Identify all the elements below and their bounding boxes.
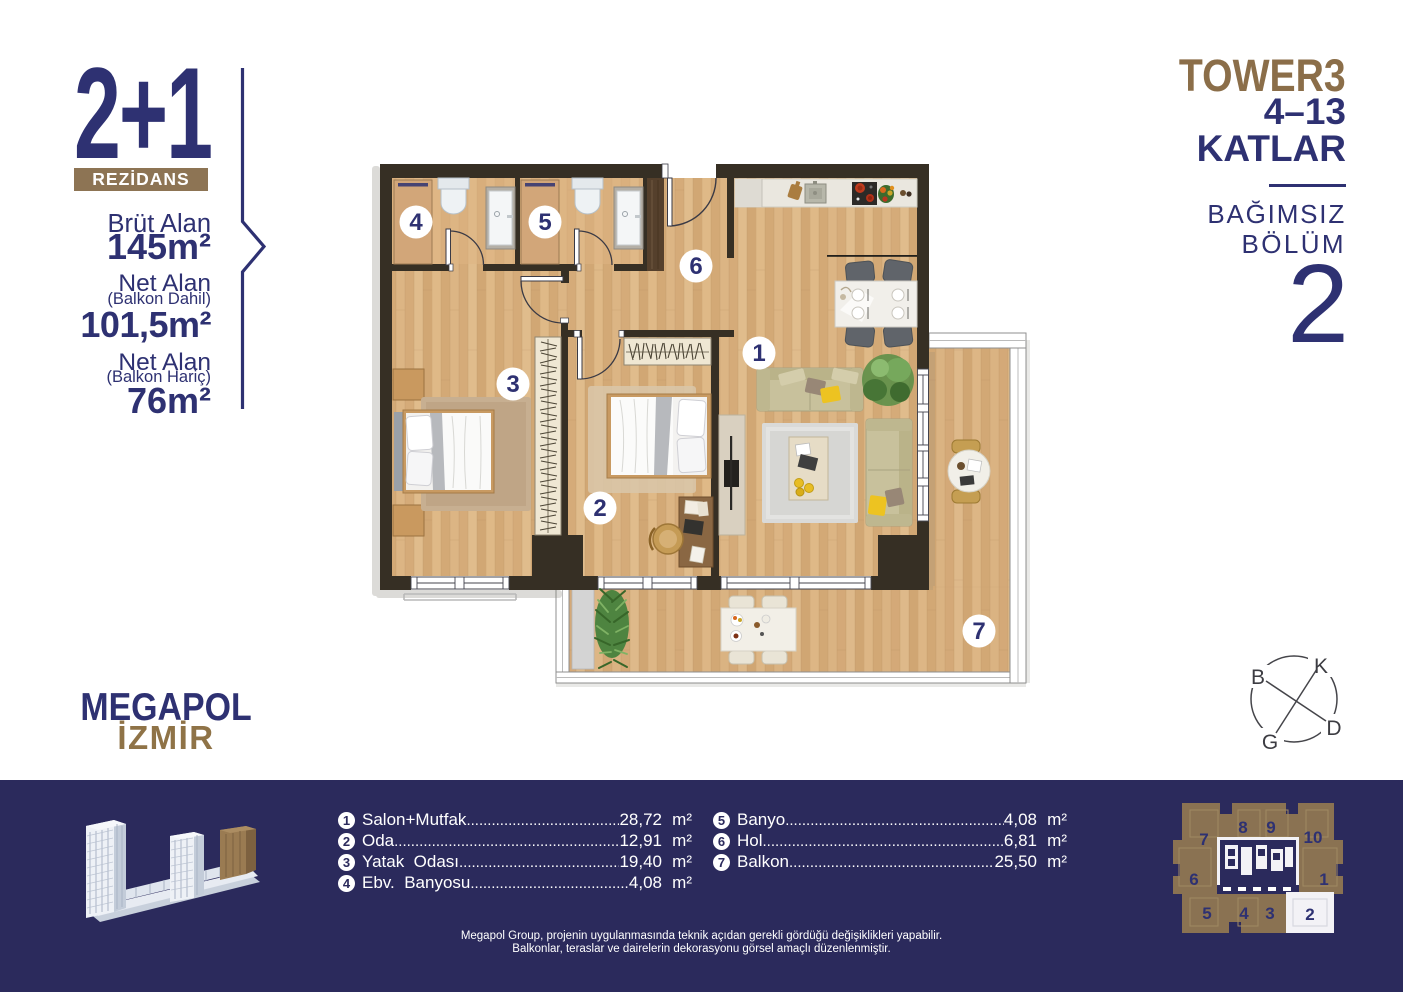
svg-text:B: B bbox=[1251, 666, 1265, 689]
svg-text:4: 4 bbox=[1239, 904, 1249, 923]
svg-text:3: 3 bbox=[1265, 904, 1274, 923]
svg-text:5: 5 bbox=[538, 209, 551, 236]
svg-text:8: 8 bbox=[1238, 818, 1247, 837]
svg-text:5: 5 bbox=[1202, 904, 1211, 923]
svg-text:7: 7 bbox=[972, 618, 985, 645]
svg-text:1: 1 bbox=[752, 340, 765, 367]
svg-text:D: D bbox=[1326, 717, 1341, 740]
svg-text:7: 7 bbox=[1199, 830, 1208, 849]
svg-text:3: 3 bbox=[506, 371, 519, 398]
svg-text:2: 2 bbox=[593, 495, 606, 522]
svg-text:4: 4 bbox=[409, 209, 423, 236]
svg-text:6: 6 bbox=[689, 253, 702, 280]
svg-text:G: G bbox=[1262, 731, 1278, 750]
svg-text:6: 6 bbox=[1189, 870, 1198, 889]
svg-text:2: 2 bbox=[1305, 905, 1314, 924]
svg-text:10: 10 bbox=[1304, 828, 1323, 847]
svg-text:K: K bbox=[1314, 655, 1328, 678]
svg-text:1: 1 bbox=[1319, 870, 1328, 889]
svg-text:9: 9 bbox=[1266, 818, 1275, 837]
